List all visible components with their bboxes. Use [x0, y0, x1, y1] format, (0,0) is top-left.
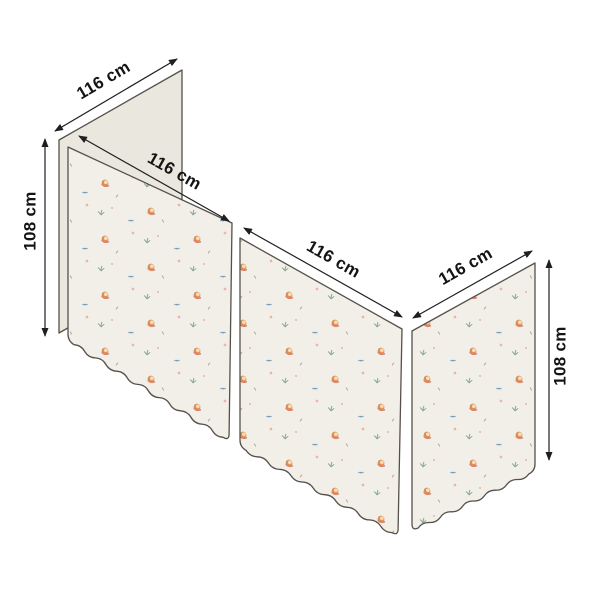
- dimension-label-right-height: 108 cm: [550, 326, 569, 385]
- dimension-label-back-top-width: 116 cm: [73, 57, 133, 103]
- curtain-panel-right-side: [412, 263, 535, 529]
- dimension-label-front-right-width: 116 cm: [303, 236, 363, 281]
- curtain-panel-front-left: [68, 147, 232, 439]
- dimension-diagram: 116 cm 108 cm 116 cm 116 cm 116 cm 108 c…: [0, 0, 600, 600]
- dimension-label-left-height: 108 cm: [20, 191, 39, 250]
- curtain-panel-front-right: [240, 238, 402, 534]
- dimension-label-right-side-width: 116 cm: [435, 243, 495, 288]
- product-dimension-image: 116 cm 108 cm 116 cm 116 cm 116 cm 108 c…: [0, 0, 600, 600]
